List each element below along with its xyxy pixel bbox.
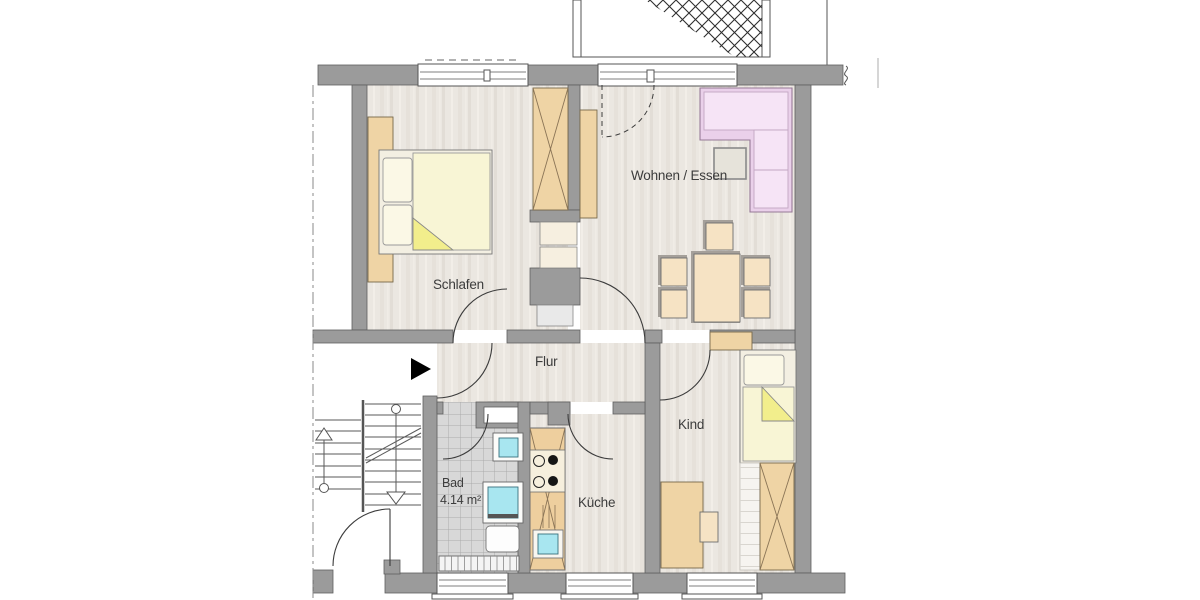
chair: [661, 290, 687, 318]
floor-plan: Schlafen Wohnen / Essen Flur Kind Bad 4.…: [0, 0, 1200, 600]
bad-wall-niche-shelf: [484, 407, 518, 423]
wall-top-left: [318, 65, 418, 85]
label-kueche: Küche: [578, 495, 615, 510]
window-mullion: [647, 70, 654, 82]
chair: [661, 258, 687, 286]
window-frame: [598, 64, 737, 86]
pillow: [744, 355, 784, 385]
wall-stair-stub-left: [313, 570, 333, 593]
shelf-box-3: [537, 305, 573, 326]
balcony-hatch: [646, 0, 762, 57]
wall-bottom-1: [385, 573, 437, 593]
shower: [483, 482, 523, 523]
balcony-wall-left: [573, 0, 581, 57]
wall-niche-mid: [530, 268, 580, 305]
sink: [538, 534, 558, 554]
single-bed: [740, 350, 796, 463]
window-kueche: [561, 573, 638, 599]
desk-chair: [700, 512, 718, 542]
shelf-box-1: [540, 222, 577, 245]
chair: [744, 290, 770, 318]
desk: [661, 482, 703, 568]
entrance-arrow-icon: [411, 358, 431, 380]
wardrobe-kind: [760, 463, 794, 570]
label-bad-area: 4.14 m²: [440, 493, 481, 507]
chair: [744, 258, 770, 286]
burner: [548, 455, 558, 465]
wall-bottom-2: [508, 573, 566, 593]
washbasin: [493, 433, 523, 461]
label-wohnen-essen: Wohnen / Essen: [631, 168, 727, 183]
stair-break-line: [366, 428, 421, 463]
window-bad: [432, 573, 513, 599]
wall-bottom-3: [633, 573, 687, 593]
window-kind: [682, 573, 762, 599]
shelf-box-2: [540, 247, 577, 268]
window-frame: [566, 573, 633, 594]
room-flur-floor: [437, 343, 645, 402]
stair-direction-down: [387, 405, 405, 505]
pillow: [383, 158, 412, 202]
wall-stair-bad: [423, 396, 437, 573]
wall-kind-left: [645, 343, 660, 573]
wall-flur-top-2: [507, 330, 580, 343]
balcony-wall-right: [762, 0, 770, 57]
stair-direction-up: [316, 428, 332, 493]
wall-top-right: [737, 65, 843, 85]
wall-bad-top-1: [437, 402, 443, 414]
label-flur: Flur: [535, 354, 558, 369]
wardrobe-schlafen: [533, 88, 568, 210]
window-frame: [687, 573, 757, 594]
wall-top-mid: [528, 65, 598, 85]
shower-drain: [488, 514, 518, 518]
label-kind: Kind: [678, 417, 704, 432]
wall-kueche-top-stub: [548, 402, 570, 425]
shelf-unit: [740, 463, 760, 570]
wall-stair-stub-right: [384, 560, 400, 574]
floor-plan-canvas: Schlafen Wohnen / Essen Flur Kind Bad 4.…: [0, 0, 1200, 600]
window-mullion: [484, 70, 490, 81]
wall-break-symbol: [845, 66, 848, 85]
stairwell-door-arc: [333, 509, 390, 566]
wall-schlafen-left: [352, 85, 367, 330]
window-frame: [418, 64, 528, 86]
pillow: [383, 205, 412, 245]
dining-table: [694, 254, 740, 322]
wall-right: [795, 85, 811, 573]
chair: [706, 223, 733, 250]
label-bad: Bad: [442, 476, 464, 490]
burner: [548, 476, 558, 486]
wall-bottom-4: [757, 573, 845, 593]
sideboard: [710, 332, 752, 350]
radiator: [439, 556, 519, 571]
wall-schlafen-right: [568, 85, 580, 210]
window-balcony-door: [598, 64, 737, 86]
kitchen-counter: [530, 428, 565, 570]
wall-flur-top-1: [313, 330, 453, 343]
window-schlafen: [418, 60, 528, 86]
tall-cabinet: [580, 110, 597, 218]
wall-kueche-top-2: [613, 402, 645, 414]
double-bed: [379, 150, 492, 254]
toilet: [486, 526, 519, 552]
wall-niche-top: [530, 210, 580, 222]
window-frame: [437, 573, 508, 594]
label-schlafen: Schlafen: [433, 277, 484, 292]
wall-flur-top-3: [645, 330, 662, 343]
